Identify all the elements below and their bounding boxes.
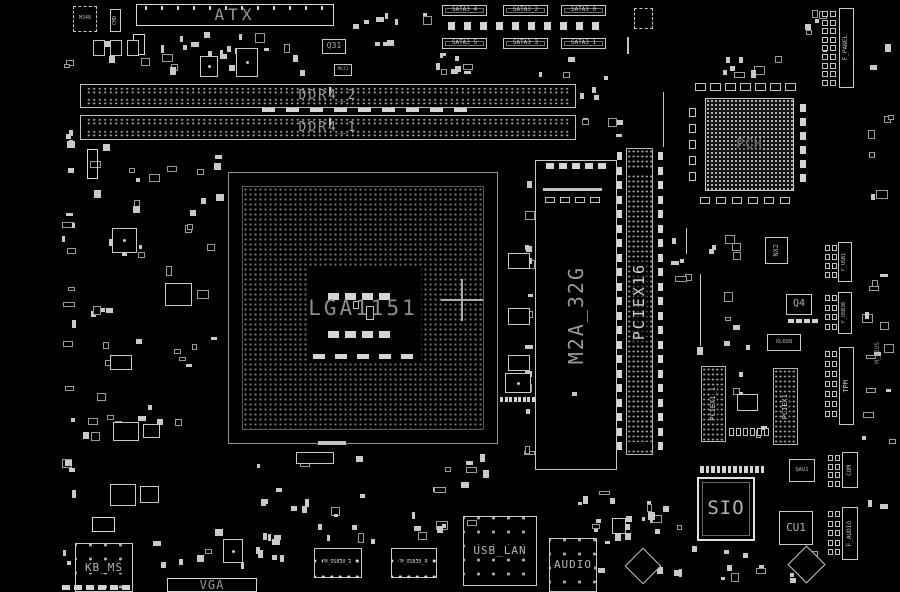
m2-pads-1-pad <box>545 197 555 203</box>
f-audio-pins-pad <box>835 549 840 555</box>
chip-cu1: CU1 <box>779 511 813 545</box>
conn-cmd: CMD <box>110 9 121 32</box>
passive-component <box>161 45 164 52</box>
chip-nx2: NX2 <box>765 237 788 264</box>
passive-component <box>149 174 160 182</box>
slot-pciex16-label: PCIEX16 <box>632 261 648 342</box>
px16-pads-left-pad <box>617 370 622 378</box>
header-m-usb30-4: M_USB30_4 <box>391 548 437 578</box>
passive-component <box>461 482 469 488</box>
chip-q4-label: Q4 <box>793 299 805 310</box>
px16-pads-left-pad <box>617 196 622 204</box>
passive-component <box>592 524 600 529</box>
passive-component <box>440 53 443 58</box>
f-usb1-pins-pad <box>832 245 837 251</box>
conn-sata3-0-label: SATA3_0 <box>571 7 596 13</box>
pch-pads-right-pad <box>800 146 806 154</box>
passive-component <box>353 24 360 29</box>
f-panel-pins-pad <box>830 20 836 26</box>
m2-pads-2-pad <box>585 163 593 169</box>
f-usb30-pins-pad <box>825 305 830 311</box>
sio-pads-top-pad <box>728 466 732 473</box>
passive-component <box>723 70 728 75</box>
passive-component <box>525 446 531 454</box>
px16-pads-left-pad <box>617 225 622 233</box>
cpu-center-pad <box>345 331 356 338</box>
sata-pad-row-pad <box>496 22 503 30</box>
passive-component <box>754 66 765 75</box>
pch-pads-top-pad <box>770 83 781 91</box>
conn-small-3 <box>92 517 115 532</box>
passive-component <box>672 238 676 244</box>
passive-component <box>775 56 781 63</box>
u22-pads-pad <box>509 397 512 402</box>
silk-bar-1 <box>318 441 346 445</box>
passive-component <box>227 46 231 52</box>
passive-component <box>648 512 655 520</box>
silk-line-3 <box>686 228 687 254</box>
conn-kb-ms-label: KB_MS <box>83 562 125 574</box>
tpm-pins-pad <box>825 351 830 357</box>
chip-u16 <box>143 424 160 438</box>
passive-component <box>616 120 623 125</box>
pch-pads-bottom-pad <box>732 197 742 204</box>
conn-usb-lan-label: USB_LAN <box>471 545 528 557</box>
f-panel-pins-pad <box>830 71 836 77</box>
passive-component <box>663 506 669 512</box>
com-pins-pad <box>835 455 840 461</box>
px16-pads-left-pad <box>617 283 622 291</box>
passive-component <box>563 72 571 78</box>
cpu-center-pad <box>357 354 369 359</box>
f-usb30-pins-pad <box>832 324 837 330</box>
passive-component <box>220 50 223 57</box>
passive-component <box>107 415 114 420</box>
passive-component <box>258 550 263 558</box>
passive-component <box>464 71 472 75</box>
chip-u18 <box>140 486 159 503</box>
tpm-pins-pad <box>832 371 837 377</box>
passive-component <box>868 130 874 139</box>
tpm-pins-pad <box>832 351 837 357</box>
passive-component <box>136 178 141 182</box>
passive-component <box>539 72 542 77</box>
passive-component <box>733 252 741 260</box>
fiducial-cross-v <box>461 279 463 321</box>
conn-f-usb1-label: F_USB1 <box>842 253 847 271</box>
slot-pciex1-label: PCIEX1 <box>782 393 789 420</box>
passive-component <box>229 65 235 71</box>
passive-component <box>67 248 76 254</box>
passive-component <box>69 130 72 137</box>
chip-u22 <box>505 373 531 393</box>
passive-component <box>724 550 729 554</box>
tpm-pins-pad <box>832 361 837 367</box>
conn-cmd-label: CMD <box>113 16 118 25</box>
u22-pads-pad <box>532 397 535 402</box>
chip-u15 <box>113 422 139 441</box>
sio-pads-top-pad <box>739 466 743 473</box>
pch-pads-top-pad <box>710 83 721 91</box>
f-usb1-pins-pad <box>832 254 837 260</box>
px16-pads-right-pad <box>658 297 663 305</box>
passive-component <box>138 252 144 258</box>
f-usb30-pins-pad <box>825 324 830 330</box>
pch-pads-right-pad <box>800 118 806 126</box>
conn-tpm-label: TPM <box>843 380 850 393</box>
passive-component <box>272 555 276 560</box>
tpm-pins-pad <box>825 411 830 417</box>
passive-component <box>675 276 687 282</box>
passive-component <box>263 533 267 540</box>
passive-component <box>437 526 443 533</box>
passive-component <box>608 118 617 127</box>
cpu-center-pad <box>313 354 325 359</box>
passive-component <box>64 64 71 68</box>
conn-com-label: COM <box>847 465 853 476</box>
px16-pads-right-pad <box>658 370 663 378</box>
passive-component <box>179 357 186 362</box>
px16-pads-left-pad <box>617 355 622 363</box>
passive-component <box>414 526 421 532</box>
passive-component <box>161 562 166 568</box>
passive-component <box>375 42 380 46</box>
passive-component <box>730 66 735 70</box>
passive-component <box>756 568 766 574</box>
cpu-center-pad <box>379 354 391 359</box>
passive-component <box>869 152 876 158</box>
motherboard-layout-diagram: ATXM348CMDQ31MG71SATA3_4SATA3_2SATA3_0SA… <box>0 0 900 592</box>
sata-pad-row-pad <box>592 22 599 30</box>
m2-pads-2-pad <box>559 163 567 169</box>
passive-component <box>65 386 74 390</box>
passive-component <box>215 529 223 537</box>
slot-ddr4-1-label: DDR4_1 <box>299 121 358 135</box>
passive-component <box>71 418 75 421</box>
passive-component <box>97 393 106 401</box>
passive-component <box>884 344 894 353</box>
header-m-usb30-2-label: M_USB30_2 <box>323 560 352 565</box>
pch-pads-top-pad <box>740 83 751 91</box>
passive-component <box>528 294 533 297</box>
passive-component <box>578 502 582 505</box>
pch-pads-top-pad <box>785 83 796 91</box>
pch-pads-right-pad <box>800 104 806 112</box>
m2-pads-1-pad <box>560 197 570 203</box>
cpu-center-pad <box>366 306 374 320</box>
u22-pads-pad <box>514 397 517 402</box>
conn-f-panel: F_PANEL <box>839 8 854 88</box>
f-audio-pins-pad <box>828 521 833 527</box>
passive-component <box>88 418 98 425</box>
f-audio-pins-pad <box>828 530 833 536</box>
cpu-center-pad <box>362 293 373 300</box>
passive-component <box>65 460 72 466</box>
chip-q31-label: Q31 <box>327 42 341 50</box>
tpm-pins-pad <box>832 391 837 397</box>
passive-component <box>280 555 284 562</box>
px16-pads-right-pad <box>658 152 663 160</box>
passive-component <box>214 163 221 170</box>
hdr-pads-mid-pad <box>729 428 734 436</box>
passive-component <box>886 389 891 392</box>
passive-component <box>204 32 210 38</box>
cpu-center-pad <box>335 354 347 359</box>
conn-small-2 <box>87 149 98 179</box>
f-usb1-pins-pad <box>825 272 830 278</box>
sio-pads-top-pad <box>722 466 726 473</box>
px16-pads-right-pad <box>658 167 663 175</box>
passive-component <box>889 439 895 444</box>
f-panel-pins-pad <box>830 80 836 86</box>
passive-component <box>605 541 610 544</box>
passive-component <box>434 487 446 493</box>
passive-component <box>305 499 309 507</box>
passive-component <box>207 244 215 251</box>
pch-pads-bottom-pad <box>764 197 774 204</box>
sata-pad-row-pad <box>560 22 567 30</box>
passive-component <box>166 266 172 275</box>
passive-component <box>170 67 176 75</box>
passive-component <box>174 349 181 353</box>
f-panel-pins-pad <box>830 37 836 43</box>
passive-component <box>129 168 135 173</box>
px16-pads-right-pad <box>658 442 663 450</box>
passive-component <box>138 416 145 421</box>
passive-component <box>733 325 740 330</box>
com-pins-pad <box>835 464 840 470</box>
chip-q31: Q31 <box>322 39 346 54</box>
f-usb1-pins-pad <box>832 272 837 278</box>
passive-component <box>526 409 531 413</box>
q4-pads-pad <box>788 319 794 323</box>
u22-pads-pad <box>505 397 508 402</box>
passive-component <box>257 464 260 468</box>
passive-component <box>724 341 730 346</box>
px16-pads-left-pad <box>617 167 622 175</box>
passive-component <box>746 345 751 350</box>
sio-pads-top-pad <box>744 466 748 473</box>
chip-pch-label: PCH <box>736 138 762 152</box>
slot-ddr4-1-key-notch <box>329 118 331 126</box>
f-audio-pins-pad <box>828 549 833 555</box>
passive-component <box>376 17 383 22</box>
slot-key-gap <box>627 442 652 448</box>
m2-pads-2-pad <box>546 163 554 169</box>
passive-component <box>412 512 415 519</box>
conn-tpm: TPM <box>839 347 854 425</box>
conn-audio: AUDIO <box>549 538 597 592</box>
px16-pads-left-pad <box>617 239 622 247</box>
m2-pads-1-pad <box>575 197 585 203</box>
px16-pads-right-pad <box>658 384 663 392</box>
passive-component <box>751 70 756 78</box>
tpm-pins-pad <box>825 381 830 387</box>
passive-component <box>215 155 222 159</box>
pch-pads-bottom-pad <box>748 197 758 204</box>
passive-component <box>255 33 265 43</box>
cap-row-pad <box>127 40 139 56</box>
passive-component <box>91 432 100 441</box>
f-audio-pins-pad <box>835 540 840 546</box>
f-audio-pins-pad <box>835 530 840 536</box>
atx-connector: ATX <box>136 4 334 26</box>
passive-component <box>69 468 75 472</box>
passive-component <box>180 36 183 42</box>
chip-u2 <box>236 48 258 77</box>
passive-component <box>371 539 375 544</box>
conn-f-audio: F_AUDIO <box>842 507 858 560</box>
passive-component <box>525 211 536 220</box>
passive-component <box>582 119 589 124</box>
passive-component <box>615 534 621 541</box>
passive-component <box>68 287 75 291</box>
chip-diamond-1 <box>625 548 662 585</box>
m2-pads-2-pad <box>572 163 580 169</box>
px16-pads-left-pad <box>617 384 622 392</box>
m2-pads-1-pad <box>590 197 600 203</box>
passive-component <box>385 13 388 19</box>
socket-lga1151: LGA1151 <box>228 172 498 444</box>
f-panel-pins-pad <box>822 37 828 43</box>
passive-component <box>596 519 601 523</box>
passive-component <box>568 57 576 62</box>
passive-component <box>418 532 427 540</box>
px16-pads-left-pad <box>617 312 622 320</box>
f-panel-pins-pad <box>830 63 836 69</box>
cpu-center-pad <box>328 331 339 338</box>
px16-pads-right-pad <box>658 268 663 276</box>
passive-component <box>83 432 88 439</box>
px16-pads-right-pad <box>658 210 663 218</box>
cpu-center-pad <box>401 354 413 359</box>
dimm-mid-pads-pad <box>406 108 419 112</box>
conn-sata3-2: SATA3_2 <box>503 5 548 16</box>
sio-pads-top-pad <box>717 466 721 473</box>
cpu-center-pad <box>345 293 356 300</box>
passive-component <box>162 54 173 63</box>
px16-pads-right-pad <box>658 283 663 291</box>
passive-component <box>191 42 199 48</box>
passive-component <box>216 194 224 201</box>
passive-component <box>67 141 74 148</box>
passive-component <box>197 169 204 175</box>
px16-pads-left-pad <box>617 181 622 189</box>
passive-component <box>525 345 532 349</box>
bottom-edge-pads-pad <box>110 585 118 590</box>
f-usb30-pins-pad <box>832 314 837 320</box>
passive-component <box>261 499 266 506</box>
pch-pads-bottom-pad <box>700 197 710 204</box>
passive-component <box>186 364 193 367</box>
passive-component <box>642 517 645 521</box>
chip-mg71-label: MG71 <box>338 68 349 73</box>
passive-component <box>352 525 357 530</box>
chip-qau1: QAU1 <box>789 459 815 482</box>
slot-pciex1-1: PCIEX1_1 <box>701 366 726 442</box>
passive-component <box>880 322 889 330</box>
slot-m2a-32g-label: M2A_32G <box>566 266 587 364</box>
px16-pads-right-pad <box>658 312 663 320</box>
passive-component <box>739 372 744 377</box>
passive-component <box>466 467 476 473</box>
dimm-mid-pads-pad <box>358 108 371 112</box>
conn-sata3-4-label: SATA3_4 <box>452 7 477 13</box>
passive-component <box>869 286 879 291</box>
passive-component <box>594 95 599 101</box>
slot-key-gap <box>627 169 652 175</box>
passive-component <box>647 504 652 512</box>
dimm-mid-pads-pad <box>430 108 443 112</box>
pch-pads-top-pad <box>725 83 736 91</box>
passive-component <box>527 181 532 187</box>
passive-component <box>201 198 207 205</box>
chip-u13 <box>165 283 192 306</box>
chip-u10 <box>612 518 626 534</box>
passive-component <box>197 290 209 300</box>
passive-component <box>183 45 187 49</box>
slot-m2a-32g: M2A_32G <box>535 160 617 470</box>
passive-component <box>284 44 290 53</box>
passive-component <box>167 166 177 172</box>
chip-sio-label: SIO <box>707 499 744 519</box>
passive-component <box>655 529 660 534</box>
passive-component <box>725 235 735 244</box>
px16-pads-left-pad <box>617 428 622 436</box>
f-usb30-pins-pad <box>832 305 837 311</box>
slot-ddr4-2-label: DDR4_2 <box>299 89 358 103</box>
passive-component <box>153 541 161 545</box>
sio-pads-top-pad <box>706 466 710 473</box>
f-audio-pins-pad <box>835 521 840 527</box>
chip-u12 <box>112 228 137 253</box>
slot-ddr4-2-key-notch <box>329 87 331 95</box>
u22-pads-pad <box>523 397 526 402</box>
conn-sata3-4: SATA3_4 <box>442 5 487 16</box>
com-pins-pad <box>828 455 833 461</box>
px16-pads-left-pad <box>617 442 622 450</box>
passive-component <box>148 405 152 410</box>
px16-pads-right-pad <box>658 225 663 233</box>
passive-component <box>175 419 182 426</box>
passive-component <box>62 236 65 241</box>
chip-u21 <box>508 355 530 371</box>
sata-pad-row-pad <box>512 22 519 30</box>
passive-component <box>93 306 101 315</box>
passive-component <box>383 42 391 47</box>
passive-component <box>604 76 608 80</box>
cpu-center-pad <box>379 331 390 338</box>
passive-component <box>136 339 142 345</box>
passive-component <box>616 134 622 137</box>
passive-component <box>327 535 330 541</box>
passive-component <box>94 190 101 197</box>
f-panel-pins-pad <box>822 63 828 69</box>
passive-component <box>300 70 306 76</box>
chip-u1 <box>200 56 218 77</box>
passive-component <box>880 274 888 277</box>
sata-pad-row-pad <box>528 22 535 30</box>
label-m-bios-label: M_BIOS <box>875 342 881 364</box>
passive-component <box>179 559 183 565</box>
passive-component <box>445 467 451 472</box>
chip-u17 <box>110 484 136 506</box>
passive-component <box>463 64 473 70</box>
bottom-edge-pads-pad <box>62 585 70 590</box>
f-usb30-pins-pad <box>825 314 830 320</box>
slot-pciex1: PCIEX1 <box>773 368 798 445</box>
com-pins-pad <box>828 464 833 470</box>
